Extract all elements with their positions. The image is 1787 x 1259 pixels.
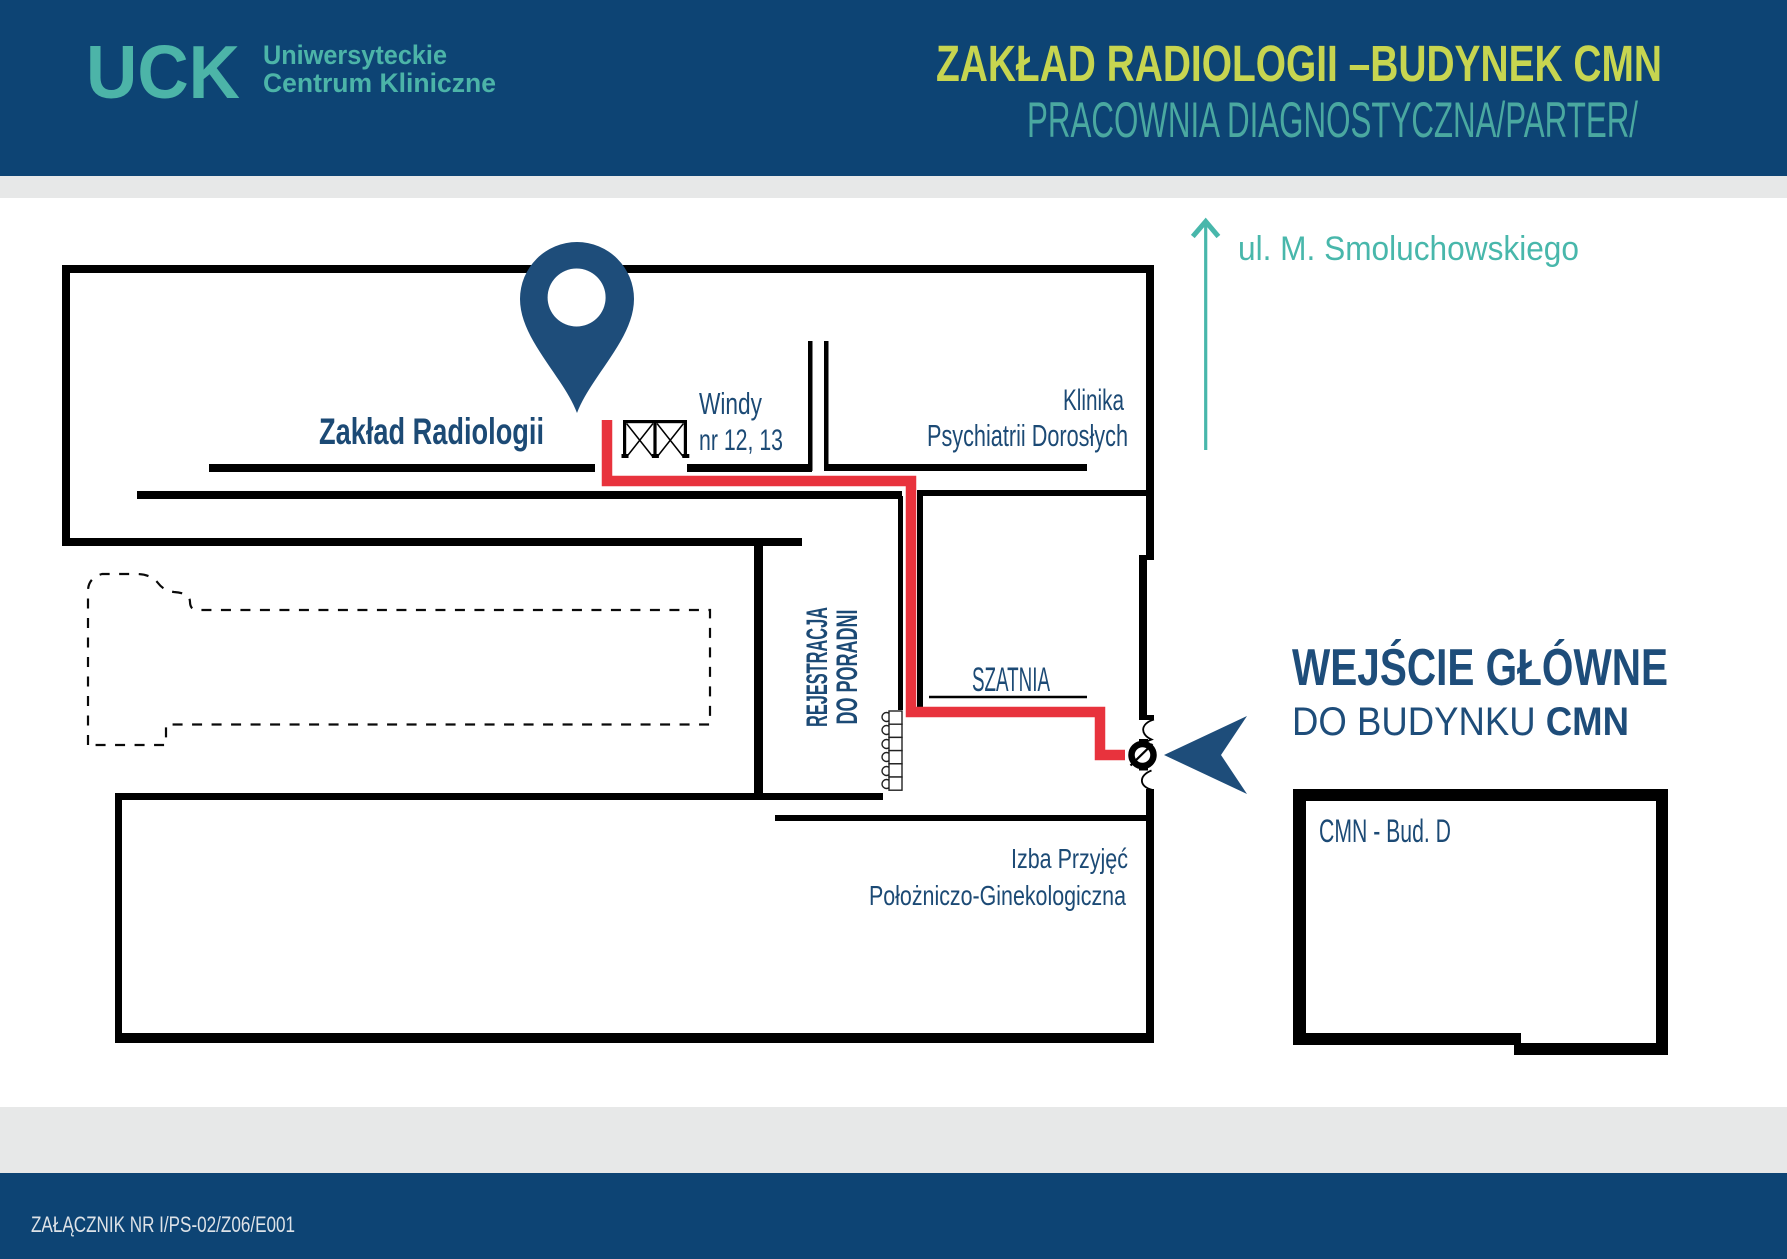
svg-text:ul. M. Smoluchowskiego: ul. M. Smoluchowskiego <box>1238 230 1579 268</box>
svg-text:DO PORADNI: DO PORADNI <box>831 610 864 725</box>
svg-text:DO BUDYNKU CMN: DO BUDYNKU CMN <box>1292 700 1629 744</box>
svg-text:SZATNIA: SZATNIA <box>972 661 1050 699</box>
svg-text:ZAKŁAD RADIOLOGII –BUDYNEK CMN: ZAKŁAD RADIOLOGII –BUDYNEK CMN <box>936 35 1662 92</box>
svg-text:Klinika: Klinika <box>1063 384 1124 417</box>
svg-text:Centrum Kliniczne: Centrum Kliniczne <box>263 68 496 98</box>
svg-text:Położniczo-Ginekologiczna: Położniczo-Ginekologiczna <box>869 880 1126 911</box>
svg-text:Uniwersyteckie: Uniwersyteckie <box>263 40 447 70</box>
svg-text:Windy: Windy <box>699 386 762 421</box>
svg-text:PRACOWNIA DIAGNOSTYCZNA/PARTER: PRACOWNIA DIAGNOSTYCZNA/PARTER/ <box>1027 92 1638 148</box>
svg-text:UCK: UCK <box>86 30 240 114</box>
svg-text:CMN - Bud. D: CMN - Bud. D <box>1319 813 1451 849</box>
svg-text:Izba Przyjęć: Izba Przyjęć <box>1011 843 1128 874</box>
svg-text:nr 12, 13: nr 12, 13 <box>699 424 783 457</box>
svg-text:Zakład Radiologii: Zakład Radiologii <box>319 411 544 452</box>
svg-text:REJESTRACJA: REJESTRACJA <box>801 607 834 727</box>
svg-text:Psychiatrii Dorosłych: Psychiatrii Dorosłych <box>927 419 1128 453</box>
svg-text:ZAŁĄCZNIK NR I/PS-02/Z06/E001: ZAŁĄCZNIK NR I/PS-02/Z06/E001 <box>31 1212 295 1237</box>
svg-text:WEJŚCIE GŁÓWNE: WEJŚCIE GŁÓWNE <box>1292 639 1668 697</box>
